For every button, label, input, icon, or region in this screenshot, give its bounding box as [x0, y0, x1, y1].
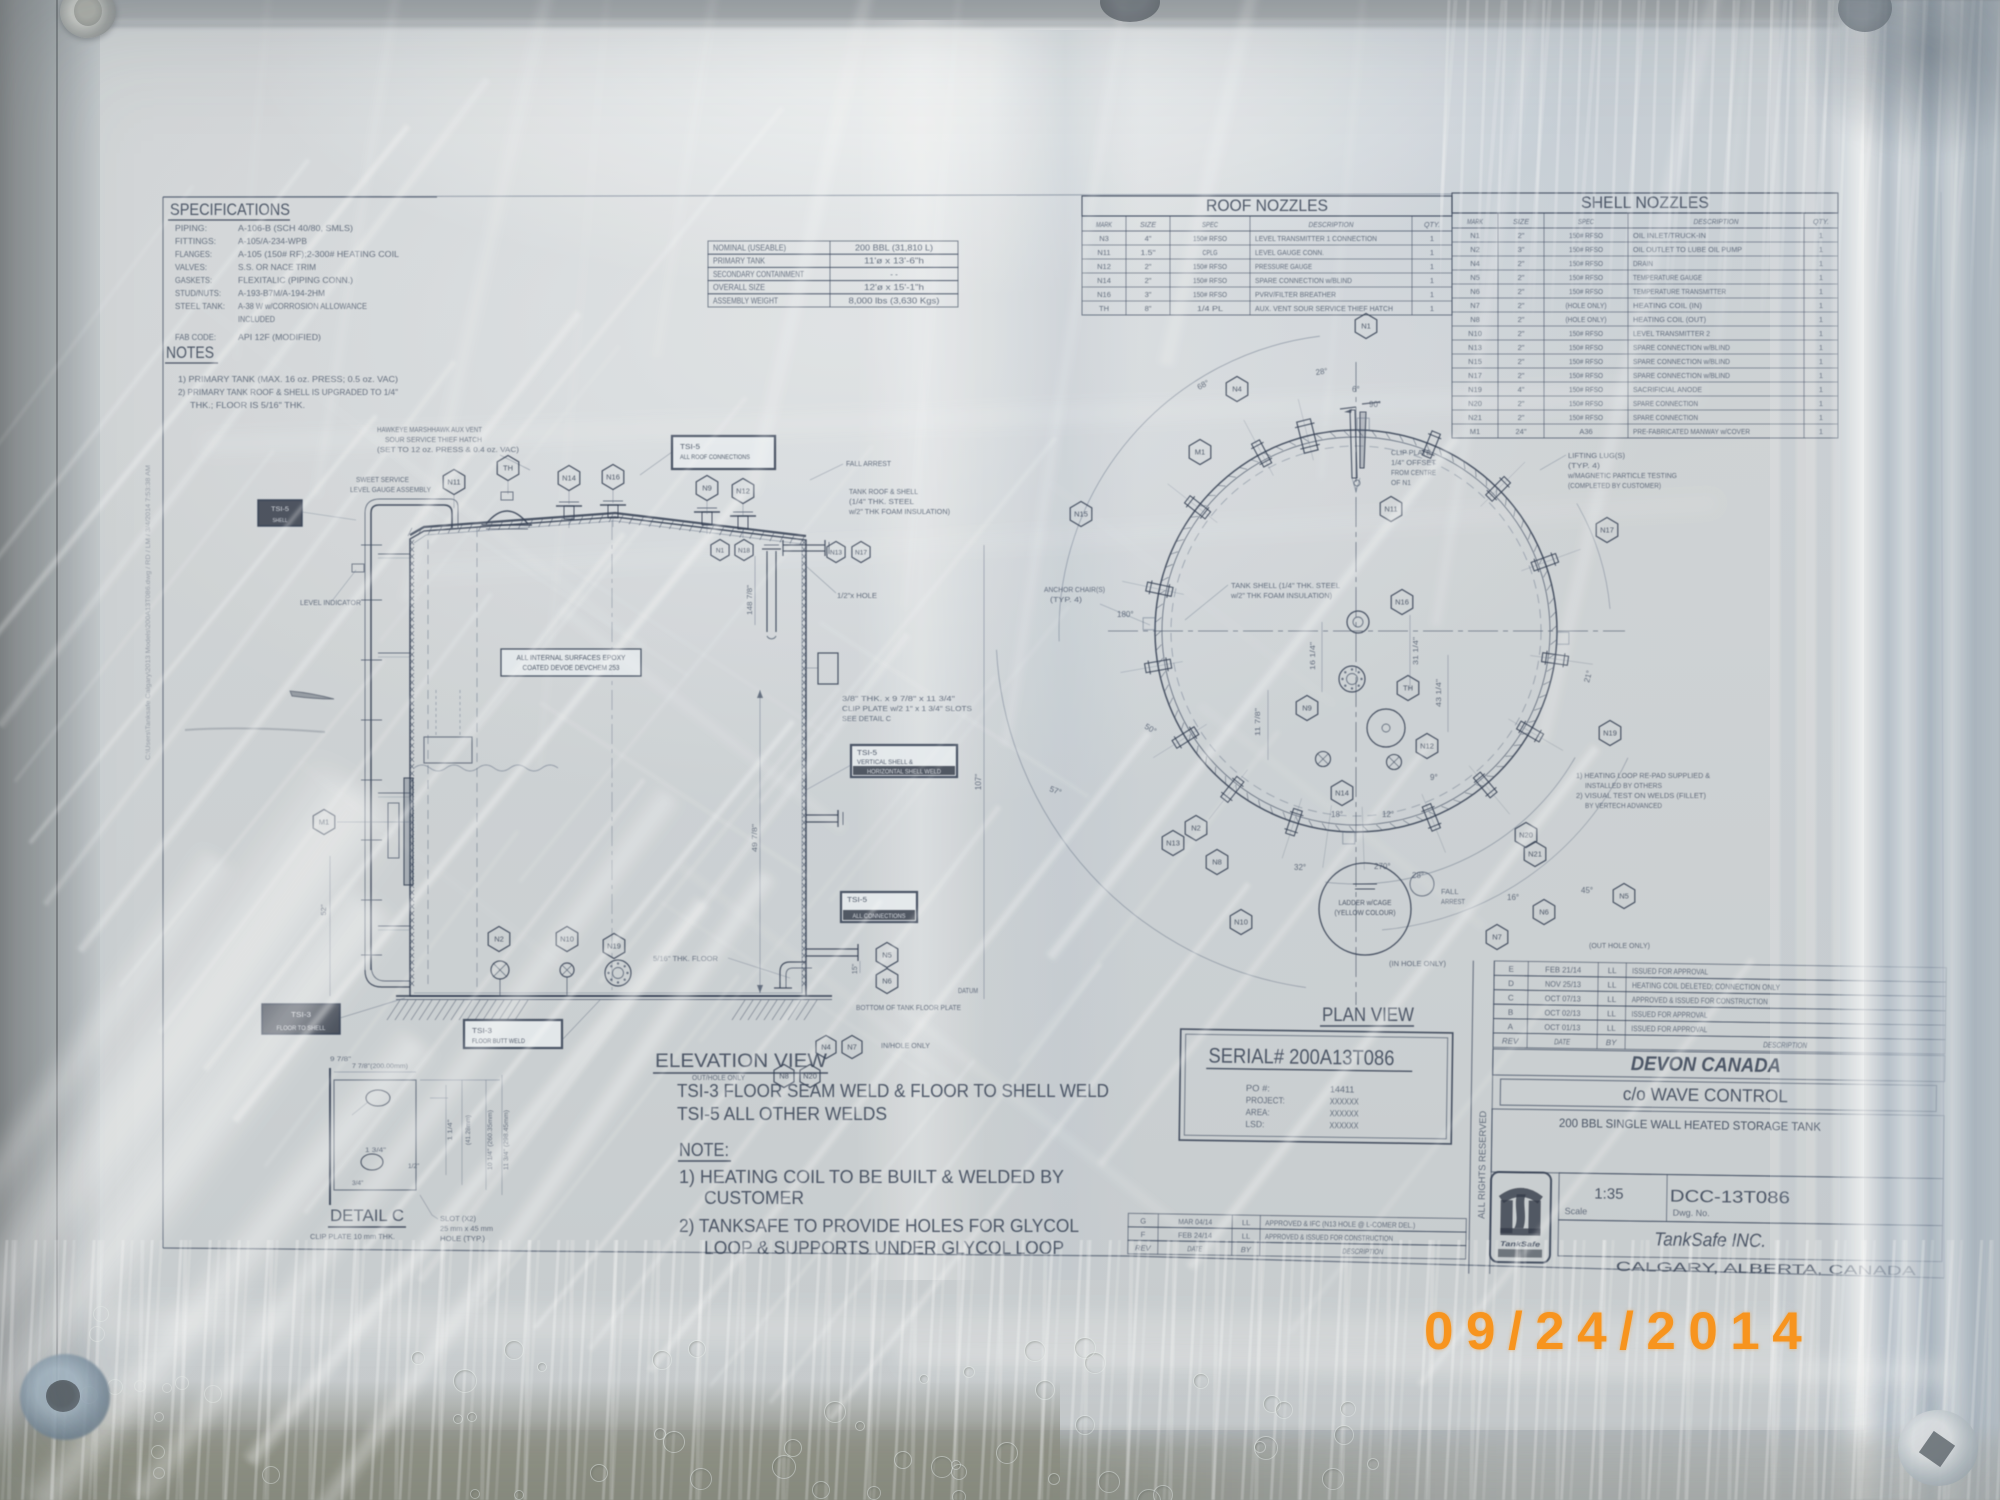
svg-text:3/8" THK. x 9 7/8" x 11 3/4": 3/8" THK. x 9 7/8" x 11 3/4": [842, 694, 955, 703]
svg-text:N19: N19: [1468, 385, 1482, 394]
svg-text:ANCHOR CHAIR(S): ANCHOR CHAIR(S): [1044, 585, 1105, 594]
svg-text:REV: REV: [1502, 1037, 1519, 1046]
svg-text:SLOT (X2): SLOT (X2): [440, 1214, 476, 1223]
svg-text:N15: N15: [1074, 510, 1088, 519]
svg-text:DATE: DATE: [1554, 1037, 1571, 1046]
svg-text:OCT 01/13: OCT 01/13: [1544, 1023, 1581, 1033]
svg-text:FEB 24/14: FEB 24/14: [1178, 1231, 1212, 1241]
svg-text:THK.; FLOOR IS 5/16" THK.: THK.; FLOOR IS 5/16" THK.: [190, 400, 305, 410]
svg-text:N10: N10: [1468, 329, 1482, 338]
svg-text:12'ø x 15'-1"h: 12'ø x 15'-1"h: [864, 283, 924, 292]
svg-text:C:\Users\Tanksafe Calgary\2013: C:\Users\Tanksafe Calgary\2013 Models\20…: [145, 465, 152, 760]
svg-text:TSI-5: TSI-5: [271, 506, 289, 513]
svg-text:ALL INTERNAL SURFACES EPOXY: ALL INTERNAL SURFACES EPOXY: [517, 653, 626, 662]
svg-text:(TYP. 4): (TYP. 4): [1568, 461, 1601, 470]
svg-text:FLANGES:: FLANGES:: [175, 249, 212, 259]
svg-text:150# RFSO: 150# RFSO: [1193, 262, 1227, 271]
svg-text:TH: TH: [1403, 684, 1413, 693]
svg-text:SPARE CONNECTION w/BLIND: SPARE CONNECTION w/BLIND: [1633, 343, 1731, 352]
svg-text:B: B: [1508, 1008, 1513, 1017]
svg-text:LL: LL: [1242, 1218, 1250, 1227]
svg-text:90°: 90°: [1369, 400, 1381, 409]
svg-text:107": 107": [974, 774, 983, 790]
svg-text:CPLG: CPLG: [1203, 248, 1218, 257]
svg-text:ALL RIGHTS RESERVED: ALL RIGHTS RESERVED: [1477, 1111, 1490, 1219]
svg-text:A: A: [1508, 1022, 1514, 1031]
svg-text:14411: 14411: [1330, 1084, 1354, 1094]
svg-text:C: C: [1508, 993, 1514, 1002]
svg-text:APPROVED & ISSUED FOR CONSTRUC: APPROVED & ISSUED FOR CONSTRUCTION: [1632, 995, 1768, 1006]
svg-text:S.S. OR NACE TRIM: S.S. OR NACE TRIM: [238, 262, 316, 272]
svg-text:N8: N8: [1212, 858, 1222, 867]
svg-text:NOMINAL (USEABLE): NOMINAL (USEABLE): [713, 244, 786, 253]
svg-text:21°: 21°: [1582, 669, 1594, 683]
svg-text:LEVEL TRANSMITTER 2: LEVEL TRANSMITTER 2: [1633, 329, 1710, 338]
svg-text:SPARE CONNECTION w/BLIND: SPARE CONNECTION w/BLIND: [1255, 276, 1353, 285]
svg-text:A36: A36: [1579, 427, 1592, 436]
svg-text:SWEET SERVICE: SWEET SERVICE: [356, 475, 409, 484]
svg-text:SERIAL# 200A13T086: SERIAL# 200A13T086: [1208, 1044, 1394, 1070]
svg-text:1:35: 1:35: [1594, 1185, 1623, 1202]
svg-text:ASSEMBLY WEIGHT: ASSEMBLY WEIGHT: [713, 296, 778, 305]
svg-text:w/2" THK FOAM INSULATION): w/2" THK FOAM INSULATION): [848, 507, 950, 516]
svg-text:8": 8": [1145, 304, 1152, 313]
svg-text:N6: N6: [1539, 908, 1549, 917]
svg-text:N19: N19: [1603, 729, 1617, 738]
svg-text:PROJECT:: PROJECT:: [1246, 1095, 1285, 1106]
svg-text:N2: N2: [1191, 824, 1201, 833]
svg-text:E: E: [1508, 965, 1513, 974]
svg-text:- -: - -: [890, 270, 898, 279]
svg-text:OF N1: OF N1: [1391, 478, 1411, 487]
svg-text:TH: TH: [1099, 304, 1109, 313]
svg-text:200 BBL (31,810 L): 200 BBL (31,810 L): [855, 244, 933, 253]
svg-text:INSTALLED BY OTHERS: INSTALLED BY OTHERS: [1585, 781, 1662, 790]
svg-text:INCLUDED: INCLUDED: [238, 314, 275, 324]
svg-text:ROOF NOZZLES: ROOF NOZZLES: [1206, 196, 1328, 215]
svg-text:CUSTOMER: CUSTOMER: [704, 1188, 804, 1208]
svg-text:SACRIFICIAL ANODE: SACRIFICIAL ANODE: [1633, 385, 1702, 394]
svg-text:OCT 07/13: OCT 07/13: [1545, 994, 1582, 1004]
svg-text:OVERALL SIZE: OVERALL SIZE: [713, 283, 765, 292]
svg-text:N16: N16: [1097, 290, 1111, 299]
svg-text:CLIP PLATE w/2 1" x 1 3/4" SLO: CLIP PLATE w/2 1" x 1 3/4" SLOTS: [842, 704, 972, 713]
svg-text:N12: N12: [1420, 742, 1434, 751]
svg-text:FLOOR BUTT WELD: FLOOR BUTT WELD: [472, 1038, 525, 1045]
svg-text:ISSUED FOR APPROVAL: ISSUED FOR APPROVAL: [1631, 1024, 1708, 1034]
svg-text:TANK SHELL (1/4" THK. STEEL: TANK SHELL (1/4" THK. STEEL: [1231, 581, 1340, 590]
svg-text:ALL CONNECTIONS: ALL CONNECTIONS: [853, 913, 907, 920]
svg-text:1: 1: [1430, 234, 1434, 243]
svg-text:OCT 02/13: OCT 02/13: [1545, 1008, 1582, 1018]
svg-text:SPARE CONNECTION w/BLIND: SPARE CONNECTION w/BLIND: [1633, 357, 1731, 366]
svg-text:M1: M1: [1195, 448, 1205, 457]
svg-text:AREA:: AREA:: [1246, 1107, 1270, 1117]
svg-text:VERTICAL SHELL &: VERTICAL SHELL &: [857, 759, 914, 766]
svg-text:N19: N19: [607, 942, 621, 951]
svg-text:Scale: Scale: [1565, 1206, 1588, 1216]
svg-text:DATUM: DATUM: [958, 986, 978, 995]
svg-text:2": 2": [1518, 343, 1525, 352]
svg-text:148 7/8": 148 7/8": [747, 584, 754, 615]
svg-text:2": 2": [1518, 371, 1525, 380]
svg-text:M1: M1: [319, 818, 329, 827]
svg-text:(YELLOW COLOUR): (YELLOW COLOUR): [1335, 908, 1396, 917]
svg-text:18°: 18°: [1331, 810, 1343, 819]
svg-text:LADDER w/CAGE: LADDER w/CAGE: [1339, 898, 1392, 907]
svg-text:TSI-5: TSI-5: [847, 895, 867, 904]
svg-text:A-105 (150# RF);2-300# HEATING: A-105 (150# RF);2-300# HEATING COIL: [238, 249, 399, 259]
svg-text:(TYP. 4): (TYP. 4): [1050, 595, 1083, 604]
svg-text:BY: BY: [1606, 1038, 1617, 1047]
svg-text:150# RFSO: 150# RFSO: [1193, 234, 1227, 243]
svg-text:28°: 28°: [1412, 871, 1424, 880]
svg-text:HORIZONTAL SHELL WELD: HORIZONTAL SHELL WELD: [867, 769, 941, 776]
svg-text:4": 4": [1518, 385, 1525, 394]
svg-text:15": 15": [852, 963, 859, 974]
svg-text:ELEVATION VIEW: ELEVATION VIEW: [655, 1051, 827, 1072]
svg-text:LSD:: LSD:: [1245, 1119, 1264, 1129]
svg-text:API 12F (MODIFIED): API 12F (MODIFIED): [238, 332, 321, 342]
svg-text:N17: N17: [855, 549, 867, 556]
svg-text:TSI-5 ALL OTHER WELDS: TSI-5 ALL OTHER WELDS: [677, 1104, 887, 1124]
svg-text:7 7/8"(200.00mm): 7 7/8"(200.00mm): [352, 1063, 408, 1070]
svg-text:N5: N5: [882, 951, 892, 960]
svg-text:31 1/4": 31 1/4": [1411, 637, 1420, 665]
svg-text:N10: N10: [1234, 918, 1248, 927]
svg-text:N7: N7: [1492, 933, 1502, 942]
svg-text:24": 24": [1515, 427, 1526, 436]
svg-text:APPROVED & IFC (N13 HOLE @ L-C: APPROVED & IFC (N13 HOLE @ L-COMER DEL.): [1265, 1218, 1416, 1229]
svg-text:1) HEATING COIL TO BE BUILT &: 1) HEATING COIL TO BE BUILT & WELDED BY: [679, 1167, 1064, 1187]
svg-text:N17: N17: [1468, 371, 1482, 380]
svg-text:TSI-3 FLOOR SEAM WELD & FLOOR: TSI-3 FLOOR SEAM WELD & FLOOR TO SHELL W…: [677, 1081, 1109, 1101]
svg-text:FLOOR TO SHELL: FLOOR TO SHELL: [277, 1025, 326, 1032]
svg-text:Dwg. No.: Dwg. No.: [1673, 1208, 1710, 1219]
svg-text:32°: 32°: [1294, 863, 1306, 872]
svg-text:LL: LL: [1607, 981, 1617, 990]
svg-text:AUX. VENT SOUR SERVICE THIEF H: AUX. VENT SOUR SERVICE THIEF HATCH: [1255, 304, 1393, 313]
svg-text:9°: 9°: [1430, 773, 1438, 782]
svg-text:COATED DEVOE DEVCHEM 253: COATED DEVOE DEVCHEM 253: [523, 663, 620, 672]
svg-text:(OUT HOLE ONLY): (OUT HOLE ONLY): [1589, 941, 1650, 950]
svg-text:FITTINGS:: FITTINGS:: [175, 236, 216, 246]
svg-text:ARREST: ARREST: [1441, 897, 1465, 906]
svg-text:N13: N13: [1468, 343, 1482, 352]
svg-text:12°: 12°: [1382, 810, 1394, 819]
svg-text:150# RFSO: 150# RFSO: [1569, 357, 1603, 366]
svg-text:SPARE CONNECTION: SPARE CONNECTION: [1633, 399, 1698, 408]
svg-text:N9: N9: [702, 484, 712, 493]
svg-text:11 3/4" (298.45mm): 11 3/4" (298.45mm): [503, 1110, 510, 1170]
svg-text:STEEL TANK:: STEEL TANK:: [175, 301, 225, 311]
svg-text:45°: 45°: [1581, 886, 1593, 895]
svg-text:SEE DETAIL C: SEE DETAIL C: [842, 714, 892, 723]
svg-text:N16: N16: [1395, 598, 1409, 607]
svg-text:1.5": 1.5": [1141, 248, 1156, 257]
svg-text:16°: 16°: [1507, 893, 1519, 902]
svg-text:1/4" OFFSET: 1/4" OFFSET: [1391, 458, 1436, 467]
svg-text:PVRV/FILTER BREATHER: PVRV/FILTER BREATHER: [1255, 290, 1337, 299]
svg-text:2": 2": [1145, 262, 1152, 271]
svg-text:N6: N6: [882, 977, 892, 986]
svg-text:68°: 68°: [1196, 378, 1211, 392]
svg-text:TSI-3: TSI-3: [472, 1026, 492, 1035]
svg-text:STUD/NUTS:: STUD/NUTS:: [175, 288, 221, 298]
svg-text:1 3/4": 1 3/4": [365, 1147, 387, 1154]
svg-text:2) PRIMARY TANK ROOF & SHELL I: 2) PRIMARY TANK ROOF & SHELL IS UPGRADED…: [178, 387, 398, 397]
svg-text:PO #:: PO #:: [1246, 1083, 1270, 1093]
svg-text:ALL ROOF CONNECTIONS: ALL ROOF CONNECTIONS: [680, 454, 751, 461]
svg-text:FALL: FALL: [1441, 887, 1459, 896]
svg-text:A-38 W w/CORROSION ALLOWANCE: A-38 W w/CORROSION ALLOWANCE: [238, 301, 367, 311]
svg-text:3/4": 3/4": [352, 1180, 364, 1187]
svg-text:150# RFSO: 150# RFSO: [1569, 343, 1603, 352]
svg-text:DESCRIPTION: DESCRIPTION: [1309, 220, 1355, 229]
svg-text:XXXXXX: XXXXXX: [1330, 1108, 1359, 1118]
svg-text:N11: N11: [1384, 505, 1397, 514]
svg-text:LL: LL: [1607, 1009, 1617, 1018]
svg-text:LEVEL GAUGE CONN.: LEVEL GAUGE CONN.: [1255, 248, 1324, 257]
svg-text:ISSUED FOR APPROVAL: ISSUED FOR APPROVAL: [1631, 1010, 1708, 1020]
svg-text:52": 52": [319, 904, 328, 915]
svg-text:(1/4" THK. STEEL: (1/4" THK. STEEL: [849, 497, 914, 506]
svg-text:TSI-5: TSI-5: [680, 442, 700, 451]
svg-text:LL: LL: [1607, 1024, 1617, 1033]
svg-text:11 7/8": 11 7/8": [1253, 708, 1262, 736]
svg-text:150# RFSO: 150# RFSO: [1569, 399, 1603, 408]
svg-text:25 mm x 45 mm: 25 mm x 45 mm: [440, 1224, 493, 1233]
svg-text:DEVON CANADA: DEVON CANADA: [1631, 1053, 1781, 1077]
svg-text:TSI-5: TSI-5: [857, 748, 877, 757]
svg-text:3": 3": [1145, 290, 1152, 299]
svg-text:LIFTING LUG(S): LIFTING LUG(S): [1568, 451, 1625, 460]
svg-text:16 1/4": 16 1/4": [1308, 642, 1317, 670]
svg-text:CLIP PLATE: CLIP PLATE: [1391, 448, 1431, 457]
svg-text:F: F: [1141, 1230, 1146, 1239]
svg-text:DETAIL C: DETAIL C: [330, 1206, 404, 1225]
svg-text:4": 4": [1145, 234, 1152, 243]
svg-text:w/2" THK FOAM INSULATION): w/2" THK FOAM INSULATION): [1230, 591, 1332, 600]
svg-text:LL: LL: [1607, 995, 1617, 1004]
svg-text:SHELL: SHELL: [273, 518, 288, 524]
svg-text:N13: N13: [1166, 839, 1180, 848]
svg-text:1/2": 1/2": [408, 1163, 420, 1170]
svg-text:N2: N2: [494, 935, 504, 944]
svg-text:N11: N11: [1097, 248, 1110, 257]
svg-text:49 7/8": 49 7/8": [750, 824, 759, 852]
svg-text:150# RFSO: 150# RFSO: [1193, 276, 1227, 285]
svg-text:HEATING COIL DELETED; CONNECTI: HEATING COIL DELETED; CONNECTION ONLY: [1632, 981, 1781, 992]
svg-text:N17: N17: [1600, 526, 1614, 535]
svg-text:FEB 21/14: FEB 21/14: [1545, 965, 1582, 975]
svg-text:1: 1: [1430, 290, 1434, 299]
svg-text:270°: 270°: [1374, 862, 1391, 871]
svg-text:N21: N21: [1528, 850, 1542, 859]
svg-text:XXXXXX: XXXXXX: [1329, 1120, 1358, 1130]
svg-text:LEVEL TRANSMITTER 1 CONNECTION: LEVEL TRANSMITTER 1 CONNECTION: [1255, 234, 1377, 243]
svg-text:6°: 6°: [1352, 385, 1360, 394]
svg-text:N16: N16: [606, 473, 620, 482]
svg-text:5/16" THK. FLOOR: 5/16" THK. FLOOR: [653, 954, 719, 963]
svg-text:TSI-3: TSI-3: [291, 1010, 311, 1019]
svg-text:HAWKEYE MARSHHAWK AUX VENT: HAWKEYE MARSHHAWK AUX VENT: [377, 425, 482, 434]
svg-text:1 1/4": 1 1/4": [447, 1119, 454, 1141]
svg-text:1) PRIMARY TANK (MAX. 16 oz. P: 1) PRIMARY TANK (MAX. 16 oz. PRESS; 0.5 …: [178, 374, 398, 384]
svg-text:SPARE CONNECTION: SPARE CONNECTION: [1633, 413, 1698, 422]
svg-text:PRIMARY TANK: PRIMARY TANK: [713, 257, 766, 266]
svg-text:M1: M1: [1470, 427, 1480, 436]
svg-text:w/MAGNETIC PARTICLE TESTING: w/MAGNETIC PARTICLE TESTING: [1567, 471, 1677, 480]
svg-text:GASKETS:: GASKETS:: [175, 275, 212, 285]
svg-text:A-106-B (SCH 40/80, SMLS): A-106-B (SCH 40/80, SMLS): [238, 223, 353, 233]
svg-text:FAB CODE:: FAB CODE:: [175, 332, 216, 342]
svg-text:(IN HOLE ONLY): (IN HOLE ONLY): [1389, 959, 1447, 968]
svg-text:28°: 28°: [1315, 366, 1328, 377]
svg-text:IN/HOLE ONLY: IN/HOLE ONLY: [881, 1041, 930, 1050]
svg-text:N15: N15: [1468, 357, 1482, 366]
svg-text:N10: N10: [560, 935, 574, 944]
svg-text:SPECIFICATIONS: SPECIFICATIONS: [170, 200, 290, 219]
svg-text:PLAN VIEW: PLAN VIEW: [1322, 1005, 1414, 1026]
svg-text:SOUR SERVICE THIEF HATCH: SOUR SERVICE THIEF HATCH: [385, 435, 482, 444]
svg-text:9 7/8": 9 7/8": [330, 1056, 352, 1063]
svg-text:1) HEATING LOOP RE-PAD SUPPLIE: 1) HEATING LOOP RE-PAD SUPPLIED &: [1576, 771, 1710, 780]
svg-text:N9: N9: [1302, 704, 1312, 713]
svg-text:FALL ARREST: FALL ARREST: [846, 459, 891, 468]
svg-text:N11: N11: [447, 478, 460, 487]
svg-text:(41.28mm): (41.28mm): [465, 1115, 472, 1145]
svg-text:XXXXXX: XXXXXX: [1330, 1096, 1359, 1106]
svg-text:N20: N20: [1519, 831, 1533, 840]
svg-text:N4: N4: [1232, 385, 1242, 394]
svg-text:1: 1: [1430, 304, 1434, 313]
svg-text:NOTE:: NOTE:: [679, 1140, 729, 1160]
svg-text:SIZE: SIZE: [1140, 220, 1157, 229]
svg-text:8,000 lbs (3,630 Kgs): 8,000 lbs (3,630 Kgs): [849, 296, 940, 305]
svg-text:2": 2": [1518, 413, 1525, 422]
svg-text:NOV 25/13: NOV 25/13: [1545, 980, 1582, 990]
svg-text:43 1/4": 43 1/4": [1434, 679, 1443, 707]
svg-text:N14: N14: [1335, 789, 1349, 798]
svg-text:MAR 04/14: MAR 04/14: [1178, 1217, 1212, 1227]
svg-text:150# RFSO: 150# RFSO: [1569, 413, 1603, 422]
svg-text:1: 1: [1430, 276, 1434, 285]
svg-text:2) VISUAL TEST ON WELDS (FILLE: 2) VISUAL TEST ON WELDS (FILLET): [1576, 791, 1706, 800]
svg-text:11'ø x 13'-6"h: 11'ø x 13'-6"h: [864, 257, 924, 266]
svg-text:SECONDARY CONTAINMENT: SECONDARY CONTAINMENT: [713, 270, 804, 279]
svg-text:FROM CENTRE: FROM CENTRE: [1391, 468, 1436, 477]
svg-text:(SET TO 12 oz. PRESS & 0.4 oz.: (SET TO 12 oz. PRESS & 0.4 oz. VAC): [377, 445, 520, 454]
svg-text:c/o WAVE CONTROL: c/o WAVE CONTROL: [1623, 1084, 1788, 1106]
svg-text:N13: N13: [830, 549, 842, 556]
svg-text:TH: TH: [503, 464, 513, 473]
svg-text:LEVEL GAUGE ASSEMBLY: LEVEL GAUGE ASSEMBLY: [350, 485, 431, 494]
svg-text:N14: N14: [562, 474, 576, 483]
svg-text:SPEC: SPEC: [1202, 220, 1218, 229]
svg-text:57°: 57°: [1048, 784, 1062, 797]
svg-text:2": 2": [1518, 357, 1525, 366]
svg-text:1/2"x HOLE: 1/2"x HOLE: [837, 591, 877, 600]
svg-text:G: G: [1140, 1216, 1146, 1225]
svg-text:N20: N20: [1468, 399, 1482, 408]
svg-text:150# RFSO: 150# RFSO: [1569, 371, 1603, 380]
svg-text:N21: N21: [1468, 413, 1482, 422]
svg-text:2": 2": [1518, 329, 1525, 338]
svg-text:N7: N7: [847, 1043, 857, 1052]
svg-text:FLEXITALIC (PIPING CONN.): FLEXITALIC (PIPING CONN.): [238, 275, 353, 285]
svg-text:A-193-B7M/A-194-2HM: A-193-B7M/A-194-2HM: [238, 288, 325, 298]
svg-text:PRESSURE GAUGE: PRESSURE GAUGE: [1255, 262, 1312, 271]
svg-text:150# RFSO: 150# RFSO: [1193, 290, 1227, 299]
svg-text:N1: N1: [716, 547, 725, 554]
svg-text:10 1/4" (260.35mm): 10 1/4" (260.35mm): [487, 1110, 494, 1170]
svg-text:2": 2": [1518, 399, 1525, 408]
svg-text:BY VERTECH ADVANCED: BY VERTECH ADVANCED: [1585, 801, 1662, 810]
svg-text:LL: LL: [1608, 966, 1618, 975]
svg-text:N3: N3: [1099, 234, 1109, 243]
svg-text:QTY.: QTY.: [1424, 220, 1440, 229]
svg-text:2": 2": [1145, 276, 1152, 285]
svg-text:N14: N14: [1097, 276, 1111, 285]
svg-text:N12: N12: [736, 487, 750, 496]
svg-text:1: 1: [1430, 248, 1434, 257]
svg-text:NOTES: NOTES: [166, 343, 214, 362]
svg-text:PIPING:: PIPING:: [175, 223, 207, 233]
svg-text:1/4 PL: 1/4 PL: [1197, 304, 1223, 313]
svg-text:150# RFSO: 150# RFSO: [1569, 329, 1603, 338]
svg-text:PRE-FABRICATED MANWAY w/COVER: PRE-FABRICATED MANWAY w/COVER: [1633, 427, 1750, 436]
svg-text:150# RFSO: 150# RFSO: [1569, 385, 1603, 394]
svg-text:ISSUED FOR APPROVAL: ISSUED FOR APPROVAL: [1632, 966, 1709, 976]
svg-text:LEVEL INDICATOR: LEVEL INDICATOR: [300, 598, 362, 607]
svg-text:TANK ROOF & SHELL: TANK ROOF & SHELL: [849, 487, 918, 496]
svg-text:1: 1: [1430, 262, 1434, 271]
svg-text:N5: N5: [1619, 892, 1629, 901]
svg-text:N18: N18: [738, 547, 750, 554]
svg-text:2) TANKSAFE TO PROVIDE HOLES F: 2) TANKSAFE TO PROVIDE HOLES FOR GLYCOL: [679, 1216, 1079, 1236]
svg-text:D: D: [1508, 979, 1514, 988]
svg-text:SPARE CONNECTION w/BLIND: SPARE CONNECTION w/BLIND: [1633, 371, 1731, 380]
svg-text:A-105/A-234-WPB: A-105/A-234-WPB: [238, 236, 307, 246]
svg-text:MARK: MARK: [1096, 220, 1113, 229]
svg-text:(COMPLETED BY CUSTOMER): (COMPLETED BY CUSTOMER): [1568, 481, 1661, 490]
svg-text:N12: N12: [1097, 262, 1111, 271]
svg-text:50°: 50°: [1143, 722, 1158, 736]
svg-text:VALVES:: VALVES:: [175, 262, 207, 272]
svg-text:BOTTOM OF TANK FLOOR PLATE: BOTTOM OF TANK FLOOR PLATE: [856, 1003, 961, 1012]
svg-text:N1: N1: [1361, 322, 1371, 331]
